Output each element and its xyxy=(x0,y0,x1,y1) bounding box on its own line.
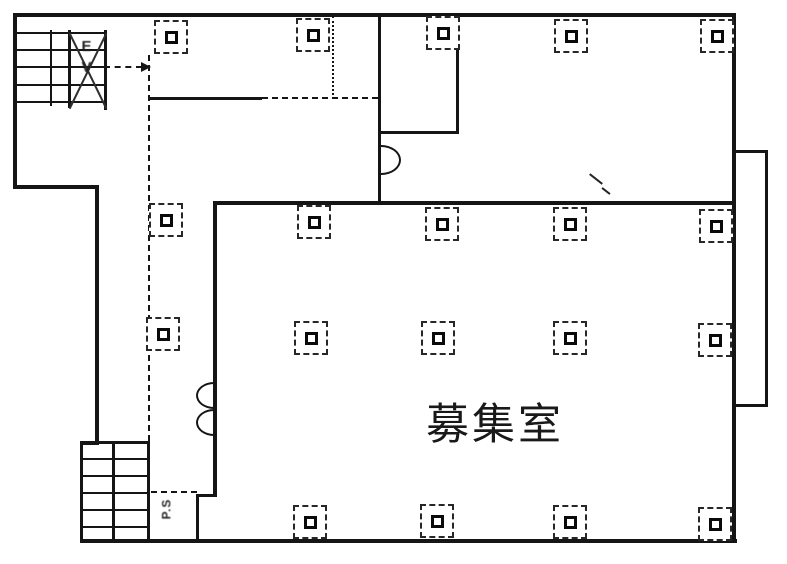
column-marker xyxy=(426,16,460,50)
column-marker xyxy=(146,317,180,351)
column-marker xyxy=(553,321,587,355)
column-marker xyxy=(553,505,587,539)
partition-dotted xyxy=(332,16,334,99)
main-room-left-wall xyxy=(213,201,217,497)
column-core xyxy=(437,27,450,40)
column-core xyxy=(305,332,318,345)
column-marker xyxy=(294,321,328,355)
shaft-label: P.S xyxy=(159,499,173,520)
column-core xyxy=(432,332,445,345)
column-core xyxy=(308,216,321,229)
stair-stringer xyxy=(68,30,71,108)
hall-wall-dashdot xyxy=(262,97,378,99)
column-marker xyxy=(154,20,188,54)
column-core xyxy=(564,516,577,529)
column-core xyxy=(436,218,449,231)
column-marker xyxy=(553,207,587,241)
stair-tread xyxy=(82,492,148,494)
column-marker xyxy=(425,207,459,241)
elevator-label: EV xyxy=(78,38,95,80)
stair-stringer xyxy=(50,30,52,106)
column-core xyxy=(160,214,173,227)
elevator-right-wall xyxy=(104,30,107,110)
column-core xyxy=(711,30,724,43)
small-room-bottom-wall xyxy=(378,131,458,134)
door-arc-west-2 xyxy=(196,409,214,436)
column-marker xyxy=(698,323,732,357)
wall-outer-right xyxy=(732,13,736,543)
wall-outer-top xyxy=(15,13,736,17)
stair-tread xyxy=(82,526,148,528)
duct-bottom-wall xyxy=(734,404,768,407)
stair-tread xyxy=(82,458,148,460)
stair-tread xyxy=(16,101,104,103)
stair-tread xyxy=(16,84,104,86)
column-marker xyxy=(149,203,183,237)
stair-tread xyxy=(16,32,104,34)
column-core xyxy=(431,515,444,528)
column-core xyxy=(157,328,170,341)
column-marker xyxy=(420,504,454,538)
column-core xyxy=(304,516,317,529)
column-core xyxy=(307,29,320,42)
direction-arrow-line xyxy=(104,66,142,68)
wall-divider-upper xyxy=(378,13,381,205)
column-core xyxy=(564,218,577,231)
shaft-room-top xyxy=(151,491,197,493)
stair-tread xyxy=(82,475,148,477)
floor-plan-canvas: EV P.S 募集室 xyxy=(0,0,787,564)
wall-outer-bottom xyxy=(80,539,737,543)
column-marker xyxy=(554,19,588,53)
column-core xyxy=(709,334,722,347)
scribble-mark xyxy=(589,173,603,184)
column-core xyxy=(565,30,578,43)
wall-outer-left-mid xyxy=(95,185,99,445)
main-room-top-wall xyxy=(213,201,734,205)
door-arc-upper xyxy=(381,145,401,175)
hall-wall-solid xyxy=(148,97,262,100)
column-marker xyxy=(296,18,330,52)
main-room-jog-v xyxy=(196,494,199,541)
door-arc-west-1 xyxy=(196,382,214,409)
column-marker xyxy=(421,321,455,355)
column-marker xyxy=(698,507,732,541)
room-label: 募集室 xyxy=(426,390,564,452)
column-marker xyxy=(699,209,733,243)
column-core xyxy=(710,220,723,233)
wall-outer-step xyxy=(13,185,99,189)
column-core xyxy=(564,332,577,345)
duct-right-wall xyxy=(765,150,768,407)
lower-stair-top-wall xyxy=(80,441,150,444)
direction-arrow-head xyxy=(141,62,151,72)
scribble-mark xyxy=(601,187,610,195)
duct-top-wall xyxy=(734,150,768,153)
main-room-jog-h xyxy=(197,494,215,497)
column-marker xyxy=(700,19,734,53)
column-core xyxy=(165,31,178,44)
column-core xyxy=(709,518,722,531)
stair-tread xyxy=(82,509,148,511)
column-marker xyxy=(297,205,331,239)
column-marker xyxy=(293,505,327,539)
